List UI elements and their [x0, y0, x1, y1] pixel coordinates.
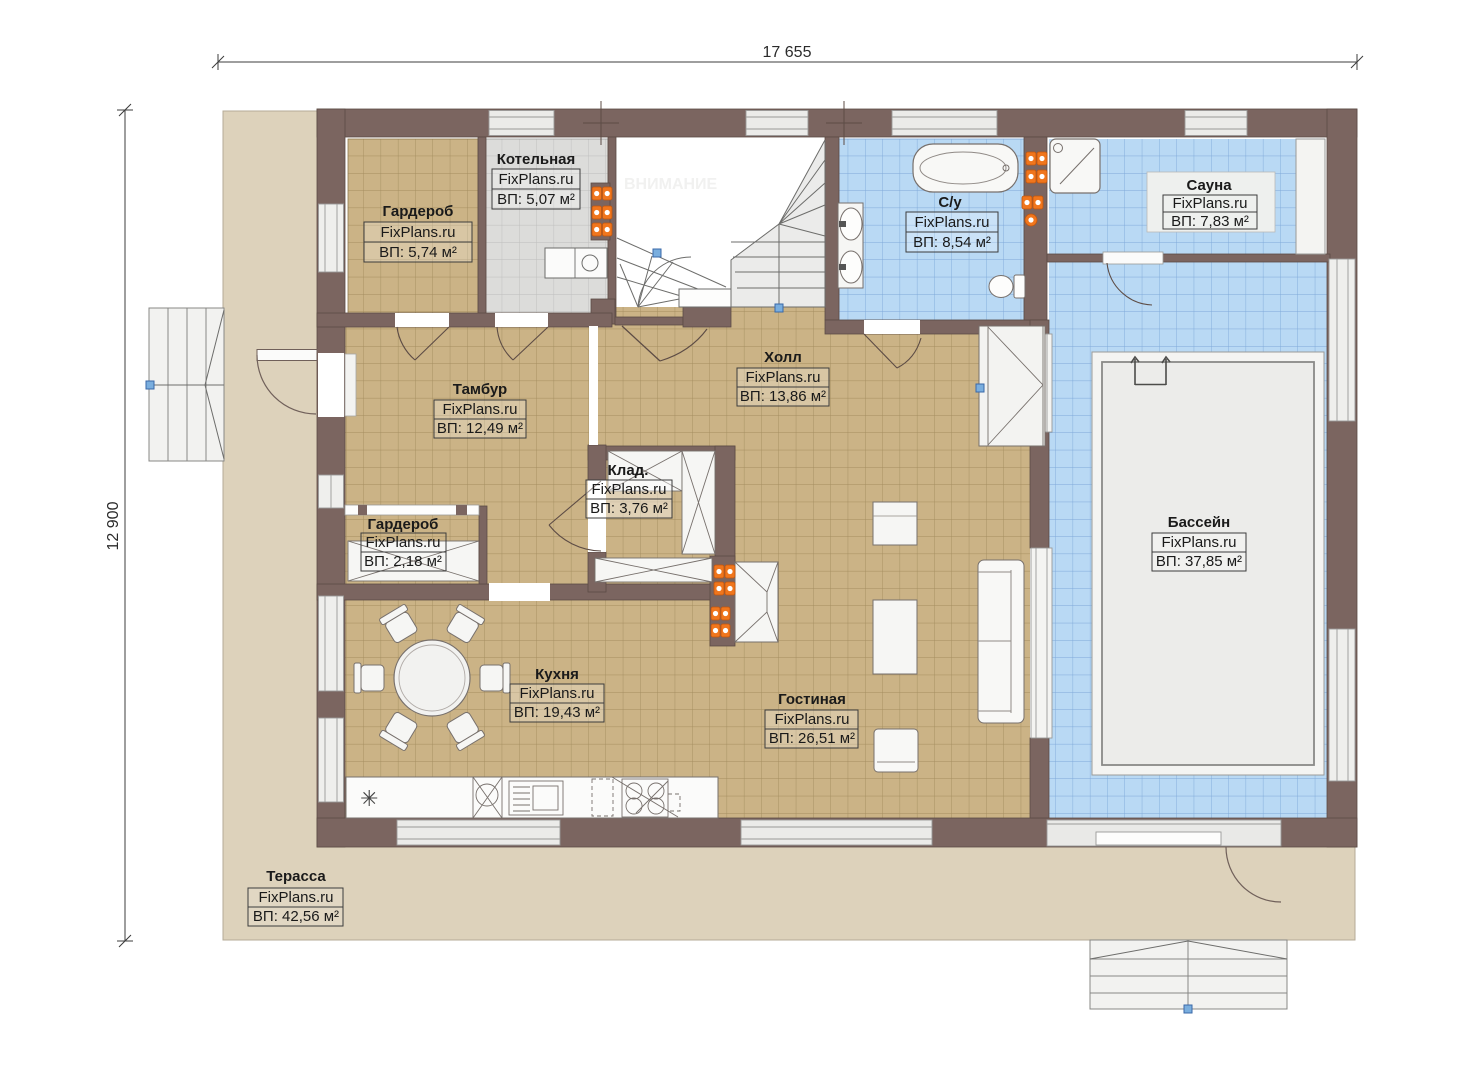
- svg-text:✳: ✳: [360, 786, 378, 811]
- svg-text:FixPlans.ru: FixPlans.ru: [774, 711, 849, 728]
- svg-text:FixPlans.ru: FixPlans.ru: [380, 224, 455, 241]
- svg-text:FixPlans.ru: FixPlans.ru: [498, 171, 573, 188]
- svg-text:FixPlans.ru: FixPlans.ru: [519, 685, 594, 702]
- svg-text:ВП: 3,76 м²: ВП: 3,76 м²: [590, 500, 668, 517]
- svg-text:Гостиная: Гостиная: [778, 691, 846, 708]
- svg-text:ВП: 5,07 м²: ВП: 5,07 м²: [497, 191, 575, 208]
- svg-text:FixPlans.ru: FixPlans.ru: [591, 481, 666, 498]
- svg-text:Холл: Холл: [764, 349, 802, 366]
- svg-text:ВП: 7,83 м²: ВП: 7,83 м²: [1171, 213, 1249, 230]
- svg-text:Клад.: Клад.: [608, 462, 649, 479]
- svg-text:FixPlans.ru: FixPlans.ru: [258, 889, 333, 906]
- svg-text:С/у: С/у: [938, 194, 962, 211]
- svg-text:FixPlans.ru: FixPlans.ru: [1172, 195, 1247, 212]
- svg-text:Котельная: Котельная: [497, 151, 576, 168]
- svg-text:Терасса: Терасса: [266, 868, 326, 885]
- svg-text:FixPlans.ru: FixPlans.ru: [745, 369, 820, 386]
- svg-text:FixPlans.ru: FixPlans.ru: [365, 534, 440, 551]
- svg-text:17 655: 17 655: [763, 44, 812, 61]
- svg-text:ВП: 42,56 м²: ВП: 42,56 м²: [253, 908, 339, 925]
- svg-text:ВНИМАНИЕ: ВНИМАНИЕ: [624, 176, 718, 193]
- svg-text:ВП: 37,85 м²: ВП: 37,85 м²: [1156, 553, 1242, 570]
- svg-text:ВП: 2,18 м²: ВП: 2,18 м²: [364, 553, 442, 570]
- svg-text:ВП: 26,51 м²: ВП: 26,51 м²: [769, 730, 855, 747]
- svg-text:Гардероб: Гардероб: [368, 516, 439, 533]
- svg-text:Тамбур: Тамбур: [453, 381, 507, 398]
- svg-text:Бассейн: Бассейн: [1168, 514, 1230, 531]
- svg-text:Сауна: Сауна: [1186, 177, 1232, 194]
- svg-text:ВП: 5,74 м²: ВП: 5,74 м²: [379, 244, 457, 261]
- svg-text:ВП: 19,43 м²: ВП: 19,43 м²: [514, 704, 600, 721]
- svg-text:ВП: 8,54 м²: ВП: 8,54 м²: [913, 234, 991, 251]
- svg-text:Кухня: Кухня: [535, 666, 579, 683]
- svg-text:ВП: 13,86 м²: ВП: 13,86 м²: [740, 388, 826, 405]
- svg-text:ВП: 12,49 м²: ВП: 12,49 м²: [437, 420, 523, 437]
- svg-text:Гардероб: Гардероб: [383, 203, 454, 220]
- svg-text:FixPlans.ru: FixPlans.ru: [1161, 534, 1236, 551]
- svg-text:FixPlans.ru: FixPlans.ru: [442, 401, 517, 418]
- svg-text:FixPlans.ru: FixPlans.ru: [914, 214, 989, 231]
- svg-text:12 900: 12 900: [105, 501, 122, 550]
